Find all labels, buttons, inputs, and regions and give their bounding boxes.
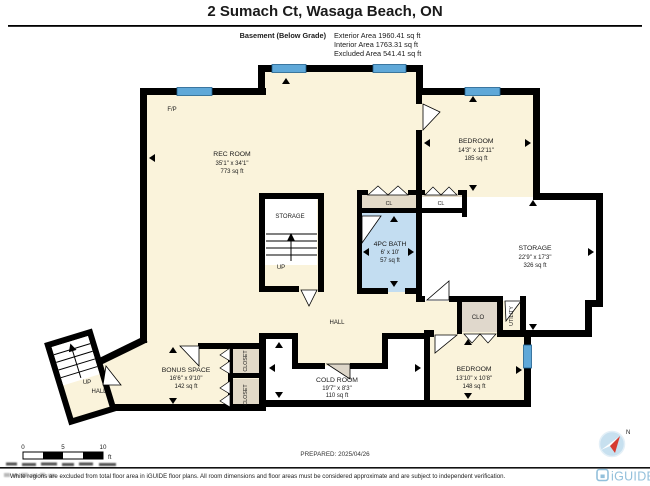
disclaimer-text: White regions are excluded from total fl… [10, 473, 506, 480]
utility-label: UTILITY [509, 306, 515, 326]
room-area: 185 sq ft [464, 156, 487, 162]
floor-label: Basement (Below Grade) [240, 31, 327, 40]
floorplan: F/P REC ROOM 35'1" x 34'1" 773 sq ft STO… [48, 65, 603, 422]
footer-divider [0, 467, 650, 469]
up-label: UP [83, 380, 91, 386]
closet-label: CL [438, 201, 445, 207]
north-label: N [626, 430, 630, 436]
room-dims: 14'3" x 12'11" [458, 148, 494, 154]
window [272, 65, 306, 73]
room-name: BONUS SPACE [162, 367, 211, 374]
room-area: 57 sq ft [380, 258, 400, 264]
title-divider [8, 25, 642, 27]
exterior-area: Exterior Area 1960.41 sq ft [334, 31, 420, 40]
closet-label: CLOSET [243, 350, 249, 372]
scale-unit: ft [108, 454, 112, 461]
compass-icon: N [600, 430, 631, 457]
room-dims: 35'1" x 34'1" [216, 161, 249, 167]
closet-label: CLOSET [243, 384, 249, 406]
interior-area: Interior Area 1763.31 sq ft [334, 40, 418, 49]
window [524, 345, 532, 368]
room-area: 148 sq ft [462, 384, 485, 390]
storage-right-floor-2 [526, 301, 587, 332]
stairs-left [48, 332, 113, 421]
scale-start: 0 [21, 444, 25, 451]
room-area: 773 sq ft [220, 169, 243, 175]
excluded-area: Excluded Area 541.41 sq ft [334, 49, 421, 58]
scale-mid: 5 [61, 444, 65, 451]
room-name: BEDROOM [458, 138, 493, 145]
room-area: 142 sq ft [174, 384, 197, 390]
room-name: STORAGE [275, 214, 304, 220]
closet-label: CL [386, 201, 393, 207]
room-name: STORAGE [518, 245, 552, 252]
room-dims: 22'9" x 17'3" [519, 255, 552, 261]
fireplace-label: F/P [167, 107, 176, 113]
scale-bar: 0 5 10 ft [21, 444, 111, 461]
room-name: BEDROOM [456, 366, 491, 373]
floorplan-page: 2 Sumach Ct, Wasaga Beach, ON Basement (… [0, 0, 650, 486]
room-name: 4PC BATH [374, 241, 407, 248]
up-label: UP [277, 265, 285, 271]
hall-label: HALL [329, 320, 345, 326]
closet-label: CLO [472, 315, 485, 321]
window [373, 65, 406, 73]
room-dims: 6' x 10' [381, 250, 400, 256]
scale-end: 10 [100, 444, 107, 451]
iguide-logo: iGUIDE [597, 470, 650, 484]
prepared-date: PREPARED: 2025/04/26 [300, 451, 370, 458]
page-title: 2 Sumach Ct, Wasaga Beach, ON [207, 3, 442, 20]
window [465, 88, 500, 96]
brand-text: iGUIDE [611, 470, 650, 484]
window [177, 88, 212, 96]
room-name: COLD ROOM [316, 377, 358, 384]
room-area: 326 sq ft [523, 263, 546, 269]
hall-label: HALL [91, 389, 107, 395]
room-dims: 13'10" x 10'8" [456, 376, 492, 382]
room-dims: 19'7" x 8'3" [322, 386, 352, 392]
room-area: 110 sq ft [326, 393, 349, 399]
room-dims: 16'6" x 9'10" [170, 376, 203, 382]
room-name: REC ROOM [213, 151, 251, 158]
